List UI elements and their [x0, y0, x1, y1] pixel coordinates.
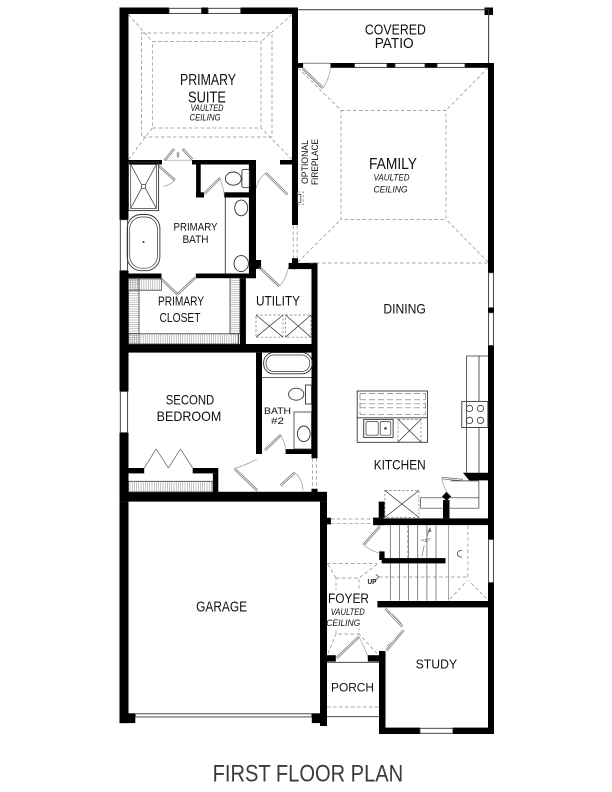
svg-text:PRIMARY: PRIMARY: [174, 222, 219, 234]
svg-text:#2: #2: [271, 416, 284, 427]
svg-text:PORCH: PORCH: [331, 683, 374, 695]
svg-text:BEDROOM: BEDROOM: [157, 408, 222, 424]
svg-text:CEILING: CEILING: [190, 113, 221, 123]
svg-text:VAULTED: VAULTED: [191, 103, 224, 113]
svg-text:KITCHEN: KITCHEN: [374, 457, 426, 473]
svg-text:PATIO: PATIO: [375, 36, 414, 52]
svg-text:CLOSET: CLOSET: [160, 311, 201, 325]
svg-text:BATH: BATH: [183, 234, 209, 246]
svg-text:GARAGE: GARAGE: [196, 599, 247, 616]
svg-text:VAULTED: VAULTED: [331, 607, 365, 617]
svg-text:SECOND: SECOND: [166, 392, 215, 408]
svg-text:UP: UP: [368, 579, 377, 586]
svg-text:FIREPLACE: FIREPLACE: [310, 139, 320, 185]
svg-text:CEILING: CEILING: [326, 618, 360, 628]
svg-text:FOYER: FOYER: [328, 591, 369, 606]
svg-text:PRIMARY: PRIMARY: [180, 72, 236, 89]
svg-text:FAMILY: FAMILY: [369, 156, 417, 173]
svg-text:UTILITY: UTILITY: [256, 294, 300, 309]
svg-text:VAULTED: VAULTED: [374, 173, 410, 184]
svg-text:STUDY: STUDY: [416, 657, 458, 671]
svg-text:CEILING: CEILING: [374, 185, 408, 196]
svg-text:PRIMARY: PRIMARY: [158, 295, 205, 309]
svg-text:DINING: DINING: [383, 301, 426, 317]
svg-text:OPTIONAL: OPTIONAL: [300, 140, 310, 184]
svg-text:FIRST FLOOR PLAN: FIRST FLOOR PLAN: [213, 761, 404, 788]
